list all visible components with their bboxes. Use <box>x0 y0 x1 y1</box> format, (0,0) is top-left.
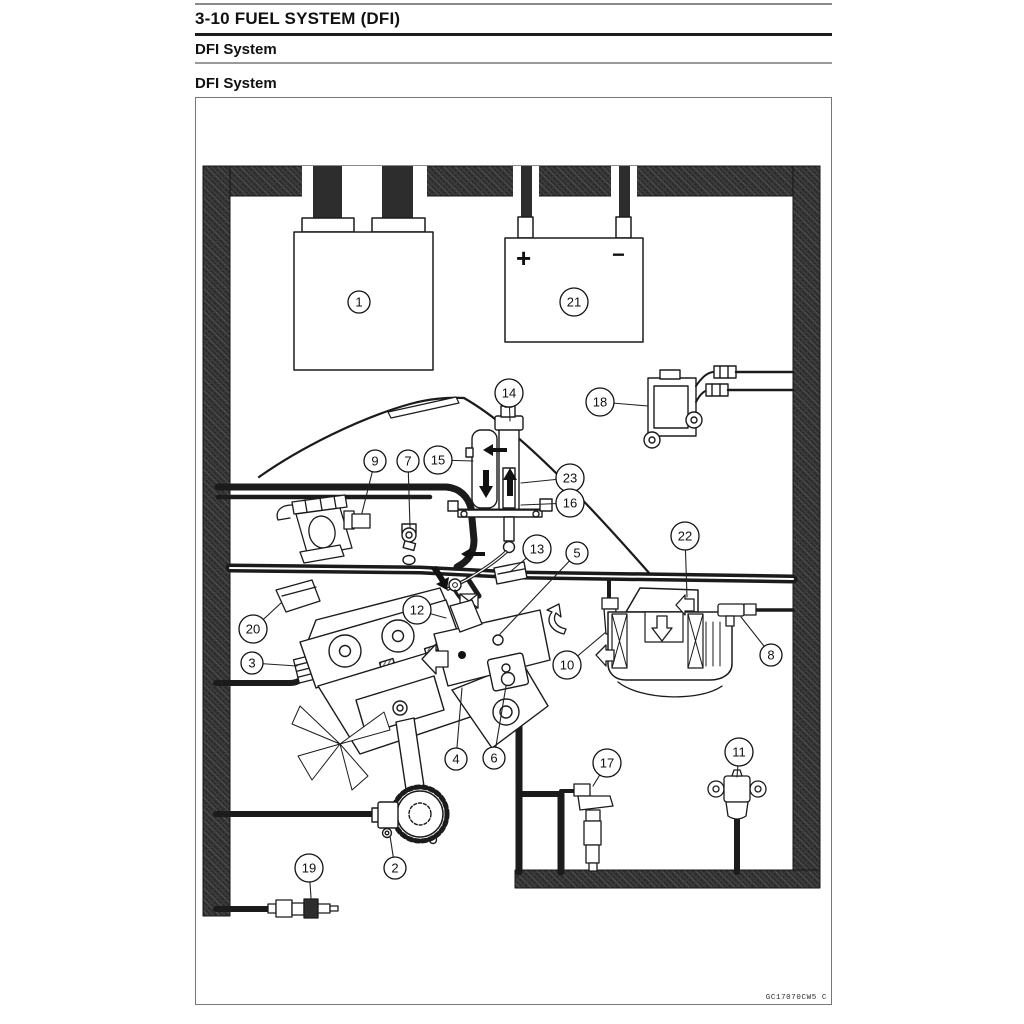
svg-text:1: 1 <box>355 295 362 310</box>
svg-text:20: 20 <box>246 622 260 637</box>
svg-text:23: 23 <box>563 471 577 486</box>
svg-text:18: 18 <box>593 395 607 410</box>
dfi-system-diagram: + − <box>0 0 1024 1024</box>
svg-text:5: 5 <box>573 546 580 561</box>
ignition-coil <box>574 784 613 871</box>
callout-13: 13 <box>510 535 551 572</box>
svg-text:7: 7 <box>404 454 411 469</box>
svg-text:4: 4 <box>452 752 459 767</box>
air-cleaner-housing <box>608 588 732 697</box>
battery-plus-symbol: + <box>516 243 531 273</box>
battery-minus-symbol: − <box>612 242 625 267</box>
callout-22: 22 <box>671 522 699 597</box>
callout-21: 21 <box>560 288 588 316</box>
svg-text:14: 14 <box>502 386 516 401</box>
svg-text:2: 2 <box>391 861 398 876</box>
callout-19: 19 <box>295 854 323 898</box>
svg-text:15: 15 <box>431 453 445 468</box>
svg-text:22: 22 <box>678 529 692 544</box>
svg-text:8: 8 <box>767 648 774 663</box>
callout-17: 17 <box>593 749 621 786</box>
svg-text:13: 13 <box>530 542 544 557</box>
svg-text:10: 10 <box>560 658 574 673</box>
air-switching-valve <box>277 495 370 563</box>
svg-text:16: 16 <box>563 496 577 511</box>
callout-3: 3 <box>241 652 297 674</box>
svg-text:6: 6 <box>490 751 497 766</box>
intake-funnel <box>276 580 320 612</box>
hose-fitting <box>402 524 416 565</box>
callout-9: 9 <box>362 450 386 513</box>
callout-2: 2 <box>384 836 406 879</box>
svg-text:9: 9 <box>371 454 378 469</box>
callout-18: 18 <box>586 388 648 416</box>
svg-text:17: 17 <box>600 756 614 771</box>
relay-unit <box>644 366 793 448</box>
figure-code: GC17070CW5 C <box>766 994 827 1002</box>
ecu <box>294 166 433 370</box>
callout-20: 20 <box>239 603 281 643</box>
callout-1: 1 <box>348 291 370 313</box>
fuel-pump-assembly <box>448 399 552 553</box>
svg-text:12: 12 <box>410 603 424 618</box>
svg-text:11: 11 <box>732 745 746 760</box>
callout-8: 8 <box>741 617 782 666</box>
idle-component <box>487 653 529 692</box>
svg-text:19: 19 <box>302 861 316 876</box>
svg-text:21: 21 <box>567 295 581 310</box>
spark-plug <box>268 899 338 918</box>
svg-text:3: 3 <box>248 656 255 671</box>
manual-page: 3-10 FUEL SYSTEM (DFI) DFI System DFI Sy… <box>0 0 1024 1024</box>
crankshaft-sensor <box>372 802 398 838</box>
